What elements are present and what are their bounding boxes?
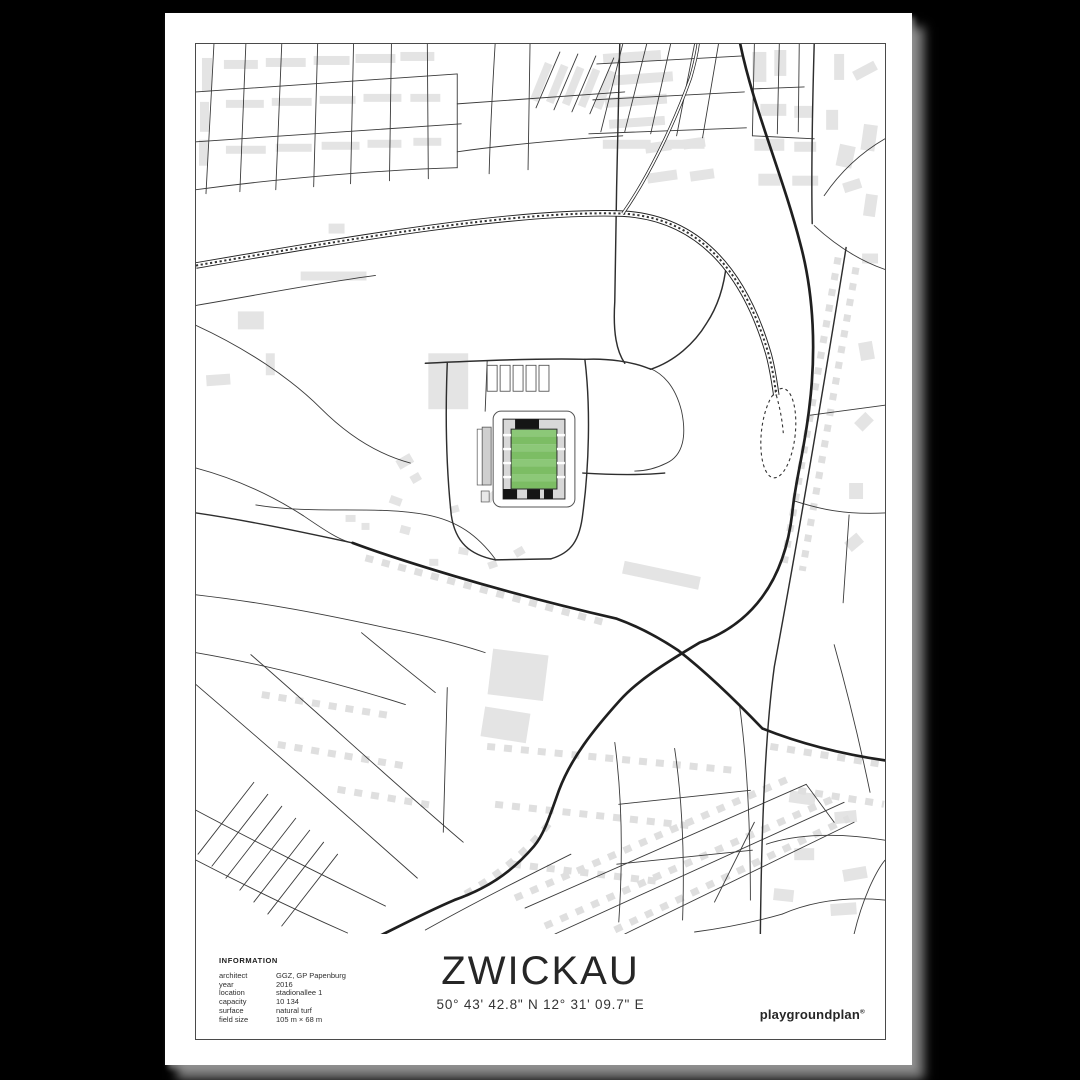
poster-title: ZWICKAU <box>196 948 885 994</box>
info-label: field size <box>219 1016 276 1025</box>
rail-loop <box>757 387 800 480</box>
brand-name: playgroundplan <box>760 1007 860 1022</box>
info-row-field-size: field size 105 m × 68 m <box>219 1016 346 1025</box>
registered-mark: ® <box>860 1009 865 1016</box>
stadium-west-stand <box>482 427 491 485</box>
rail-spur-dashed <box>776 395 783 433</box>
stadium-parking-stalls <box>487 365 549 391</box>
info-value: 105 m × 68 m <box>276 1016 322 1025</box>
poster-frame: INFORMATION architect GGZ, GP Papenburg … <box>195 43 886 1040</box>
poster: INFORMATION architect GGZ, GP Papenburg … <box>165 13 912 1065</box>
stadium-street-map <box>196 44 885 934</box>
stadium-pitch <box>511 429 557 489</box>
brand-logo: playgroundplan® <box>760 1007 865 1022</box>
title-block: ZWICKAU 50° 43' 42.8" N 12° 31' 09.7" E <box>196 948 885 1012</box>
